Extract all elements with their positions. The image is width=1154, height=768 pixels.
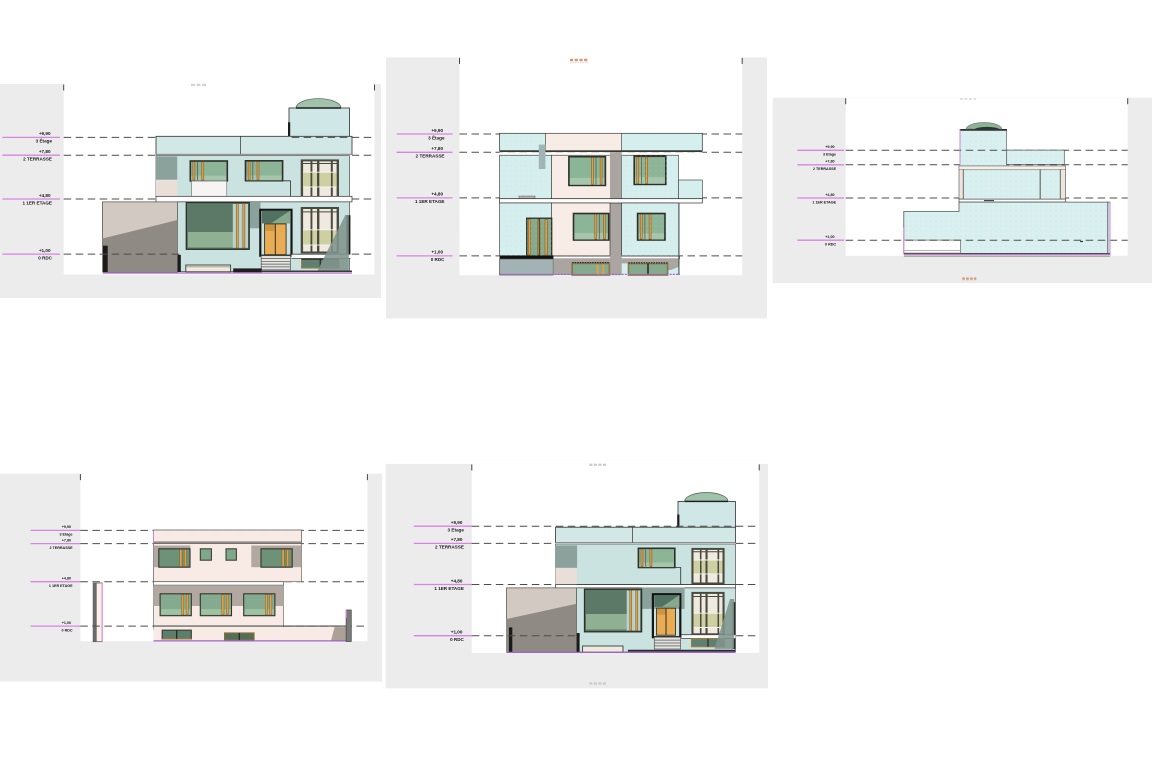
svg-text:+7,80: +7,80 <box>825 160 834 164</box>
svg-text:1 1ER ETAGE: 1 1ER ETAGE <box>812 200 836 204</box>
svg-text:3 Étage: 3 Étage <box>428 133 445 140</box>
svg-text:3 Etage: 3 Etage <box>59 533 72 537</box>
svg-text:0 RDC: 0 RDC <box>825 243 836 247</box>
svg-text:1 1ER ETAGE: 1 1ER ETAGE <box>49 584 73 588</box>
svg-text:+4,80: +4,80 <box>431 192 443 197</box>
svg-text:+4,80: +4,80 <box>39 193 51 198</box>
svg-text:+1,00: +1,00 <box>431 250 443 255</box>
svg-text:+7,80: +7,80 <box>451 537 463 542</box>
svg-text:+7,80: +7,80 <box>431 146 443 151</box>
svg-text:+1,00: +1,00 <box>62 621 71 625</box>
svg-text:+9,90: +9,90 <box>39 131 51 136</box>
svg-text:+4,80: +4,80 <box>62 577 71 581</box>
svg-text:+7,80: +7,80 <box>39 149 51 154</box>
svg-text:+1,00: +1,00 <box>451 630 463 635</box>
svg-text:+4,80: +4,80 <box>451 578 463 583</box>
svg-text:+4,80: +4,80 <box>825 193 834 197</box>
svg-text:3 Etage: 3 Etage <box>448 528 465 533</box>
svg-text:0 RDC: 0 RDC <box>450 637 464 642</box>
svg-text:+9,90: +9,90 <box>825 145 834 149</box>
svg-text:+7,80: +7,80 <box>62 538 71 542</box>
svg-text:1 1ER ETAGE: 1 1ER ETAGE <box>434 586 464 591</box>
svg-text:2 TERRASSE: 2 TERRASSE <box>49 546 73 550</box>
svg-text:2 TERRASSE: 2 TERRASSE <box>23 157 52 162</box>
svg-text:+9,90: +9,90 <box>451 520 463 525</box>
svg-text:1 1ER ETAGE: 1 1ER ETAGE <box>22 200 52 205</box>
svg-text:+1,00: +1,00 <box>39 248 51 253</box>
svg-text:0 RDC: 0 RDC <box>38 255 52 260</box>
svg-text:+9,90: +9,90 <box>431 128 443 133</box>
svg-text:0 RDC: 0 RDC <box>431 257 445 262</box>
svg-text:+1,00: +1,00 <box>825 235 834 239</box>
svg-text:2 TERRASSE: 2 TERRASSE <box>435 545 464 550</box>
svg-text:+9,90: +9,90 <box>62 525 71 529</box>
svg-text:2 TERRASSE: 2 TERRASSE <box>416 154 445 159</box>
svg-text:2 TERRASSE: 2 TERRASSE <box>813 167 837 171</box>
svg-text:0 RDC: 0 RDC <box>62 628 73 632</box>
svg-text:1 1ER ETAGE: 1 1ER ETAGE <box>415 199 445 204</box>
svg-text:3 Etage: 3 Etage <box>823 153 836 157</box>
svg-text:3 Étage: 3 Étage <box>36 137 53 144</box>
